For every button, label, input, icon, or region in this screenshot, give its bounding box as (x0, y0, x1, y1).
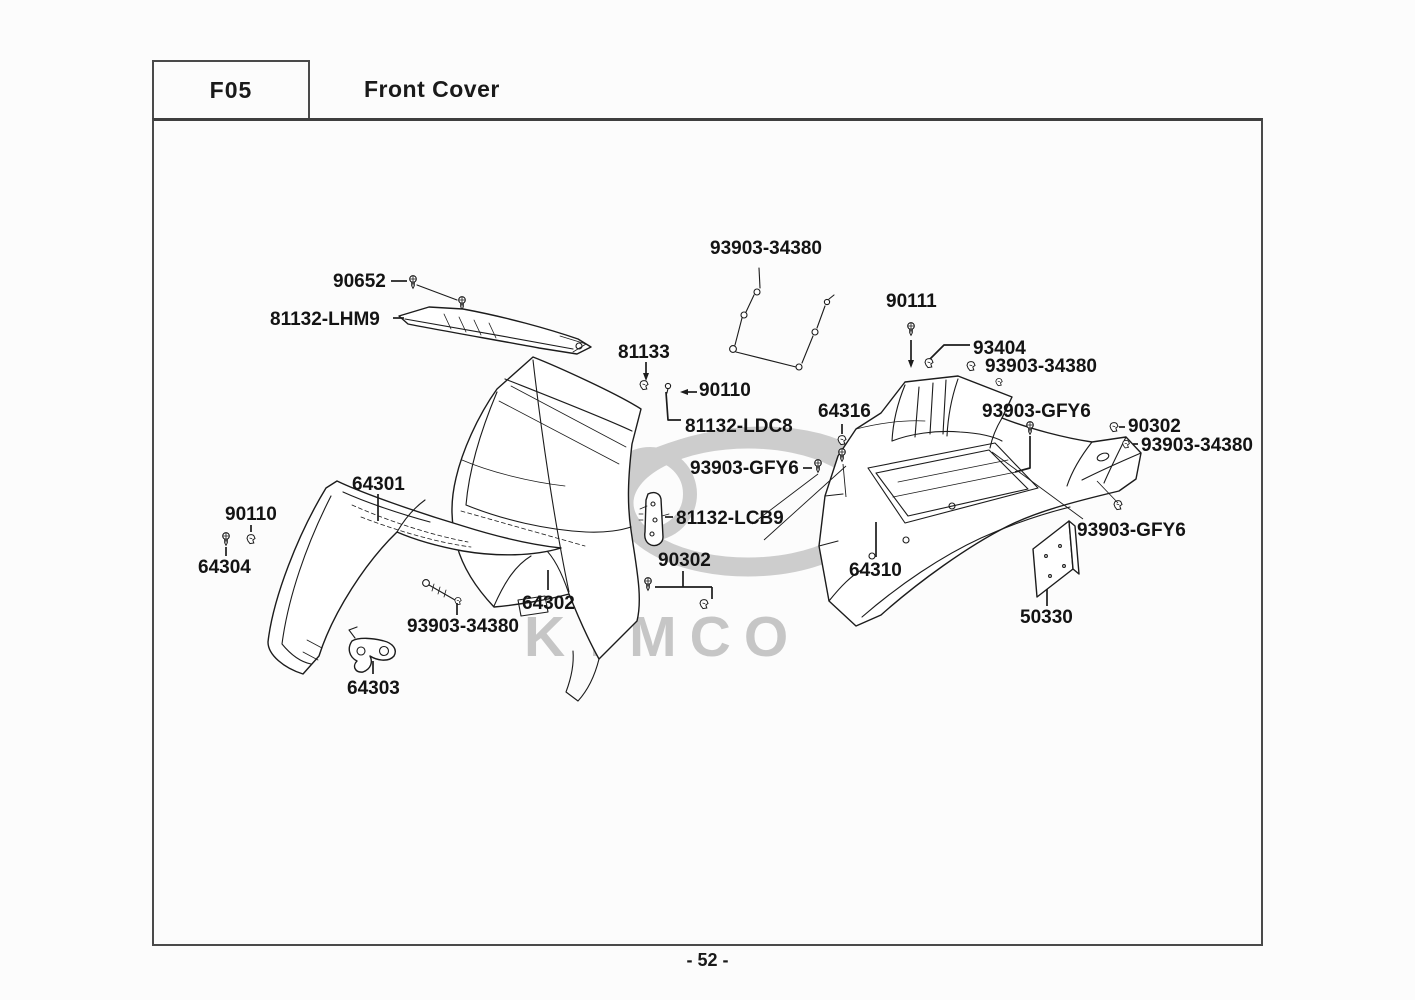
label-90302-middle: 90302 (658, 551, 711, 570)
label-93903-34380-right-lower: 93903-34380 (1141, 436, 1253, 455)
label-90302-right: 90302 (1128, 417, 1181, 436)
label-90110-top: 90110 (699, 381, 751, 400)
part-drawing-50330 (1033, 521, 1079, 597)
kymco-watermark-text: KYMCO (524, 605, 801, 669)
label-81133: 81133 (618, 343, 670, 362)
label-93903-34380-right: 93903-34380 (985, 357, 1097, 376)
label-81132-LCB9: 81132-LCB9 (676, 509, 784, 528)
label-93903-34380-top: 93903-34380 (710, 239, 822, 258)
label-93903-GFY6-middle: 93903-GFY6 (690, 459, 799, 478)
page-number: - 52 - (0, 950, 1415, 971)
label-93903-GFY6-bottom-right: 93903-GFY6 (1077, 521, 1186, 540)
label-93903-GFY6-right: 93903-GFY6 (982, 402, 1091, 421)
parts-diagram: KYMCO (0, 0, 1415, 1000)
label-50330: 50330 (1020, 608, 1073, 627)
label-90110-left: 90110 (225, 505, 277, 524)
label-64310: 64310 (849, 561, 902, 580)
part-drawing-81132-LHM9 (399, 307, 591, 354)
label-93903-34380-bottom-left: 93903-34380 (407, 617, 519, 636)
label-90652: 90652 (333, 272, 386, 291)
label-90111: 90111 (886, 292, 937, 311)
parts-catalog-page: F05 Front Cover KYMCO (0, 0, 1415, 1000)
label-64301: 64301 (352, 475, 405, 494)
label-64302: 64302 (522, 594, 575, 613)
part-drawing-long-screw (423, 580, 462, 605)
part-drawing-64303 (349, 627, 395, 672)
part-drawing-90652 (410, 276, 466, 310)
label-81132-LHM9: 81132-LHM9 (270, 310, 380, 329)
label-64316: 64316 (818, 402, 871, 421)
part-drawing-trim-wire (730, 268, 834, 370)
label-64303: 64303 (347, 679, 400, 698)
label-81132-LDC8: 81132-LDC8 (685, 417, 793, 436)
label-64304: 64304 (198, 558, 251, 577)
